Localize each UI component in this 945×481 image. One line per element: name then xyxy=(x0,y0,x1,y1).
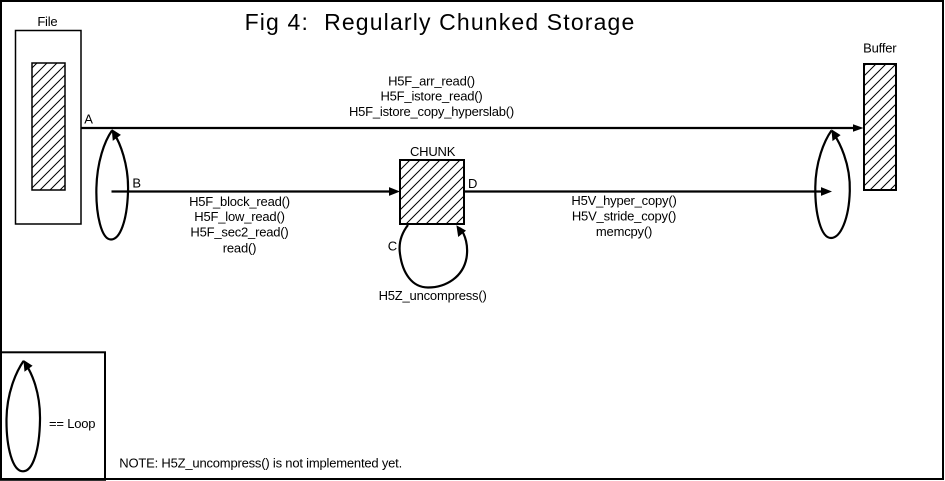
svg-text:memcpy(): memcpy() xyxy=(596,224,652,239)
svg-text:A: A xyxy=(84,112,93,127)
svg-text:H5V_hyper_copy(): H5V_hyper_copy() xyxy=(571,193,676,208)
svg-text:NOTE: H5Z_uncompress() is not: NOTE: H5Z_uncompress() is not implemente… xyxy=(119,456,402,471)
svg-text:CHUNK: CHUNK xyxy=(410,144,456,159)
svg-text:read(): read() xyxy=(223,241,256,256)
svg-text:B: B xyxy=(132,176,140,191)
svg-text:H5Z_uncompress(): H5Z_uncompress() xyxy=(379,288,487,303)
svg-text:H5F_istore_copy_hyperslab(): H5F_istore_copy_hyperslab() xyxy=(349,104,514,119)
svg-text:H5F_arr_read(): H5F_arr_read() xyxy=(388,73,475,88)
svg-text:File: File xyxy=(37,14,57,29)
svg-text:C: C xyxy=(388,239,397,254)
svg-text:Fig 4: Regularly Chunked Stor: Fig 4: Regularly Chunked Storage xyxy=(245,9,636,35)
svg-text:== Loop: == Loop xyxy=(49,416,95,431)
svg-text:Buffer: Buffer xyxy=(863,41,897,56)
svg-text:H5F_low_read(): H5F_low_read() xyxy=(194,209,284,224)
svg-text:D: D xyxy=(468,176,477,191)
svg-text:H5F_sec2_read(): H5F_sec2_read() xyxy=(190,224,288,239)
svg-text:H5V_stride_copy(): H5V_stride_copy() xyxy=(572,209,676,224)
svg-text:H5F_block_read(): H5F_block_read() xyxy=(189,194,290,209)
svg-text:H5F_istore_read(): H5F_istore_read() xyxy=(380,89,482,104)
